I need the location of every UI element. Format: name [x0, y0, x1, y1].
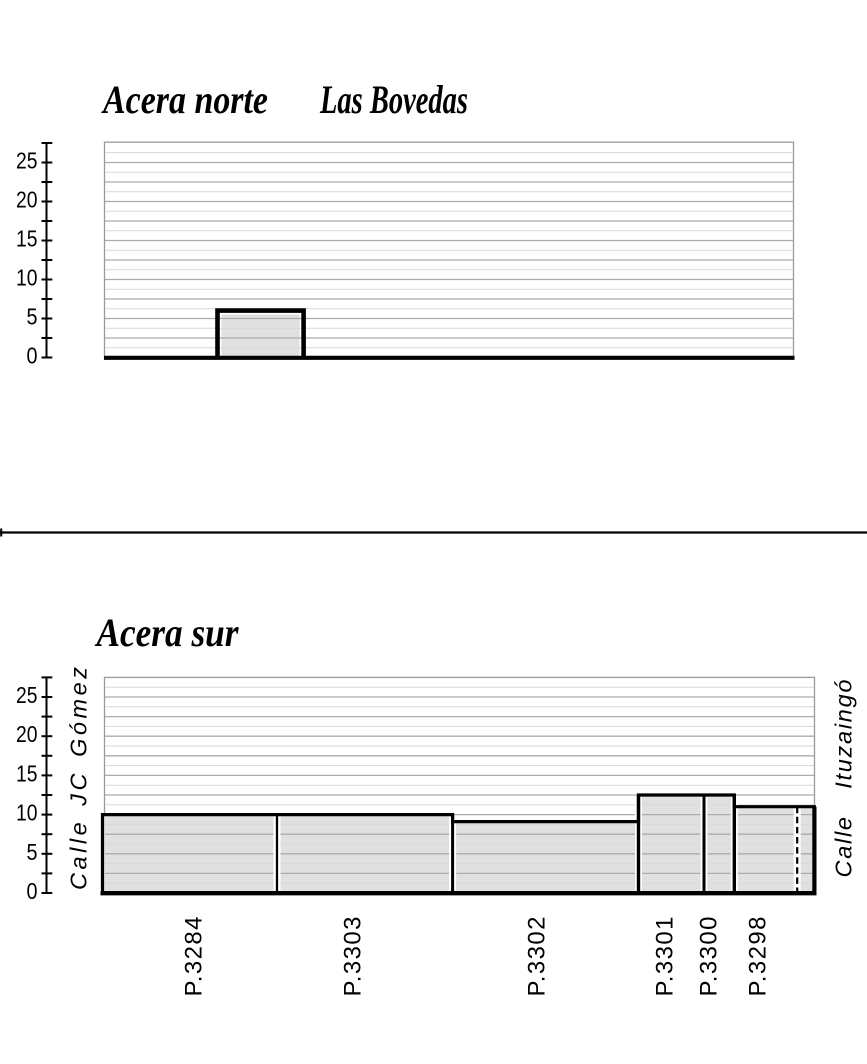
svg-text:Acera sur: Acera sur — [94, 610, 239, 655]
svg-text:20: 20 — [16, 187, 38, 213]
svg-text:Calle Ituzaingó: Calle Ituzaingó — [831, 680, 857, 878]
svg-text:P.3284: P.3284 — [181, 917, 208, 997]
svg-text:P.3298: P.3298 — [745, 917, 772, 997]
svg-text:P.3302: P.3302 — [524, 917, 551, 997]
svg-text:0: 0 — [27, 343, 38, 369]
svg-text:5: 5 — [27, 304, 38, 330]
svg-text:0: 0 — [27, 878, 38, 904]
svg-text:P.3303: P.3303 — [340, 917, 367, 997]
svg-text:10: 10 — [16, 800, 38, 826]
svg-text:15: 15 — [16, 226, 38, 252]
svg-text:25: 25 — [16, 682, 38, 708]
svg-text:Acera norte: Acera norte — [100, 77, 268, 122]
svg-text:Las Bovedas: Las Bovedas — [319, 77, 468, 122]
svg-text:5: 5 — [27, 839, 38, 865]
svg-text:Calle JC Gómez: Calle JC Gómez — [66, 667, 92, 890]
svg-text:15: 15 — [16, 760, 38, 786]
svg-text:P.3301: P.3301 — [652, 917, 679, 997]
svg-text:P.3300: P.3300 — [696, 917, 723, 997]
svg-text:25: 25 — [16, 148, 38, 174]
svg-text:20: 20 — [16, 721, 38, 747]
svg-text:10: 10 — [16, 265, 38, 291]
